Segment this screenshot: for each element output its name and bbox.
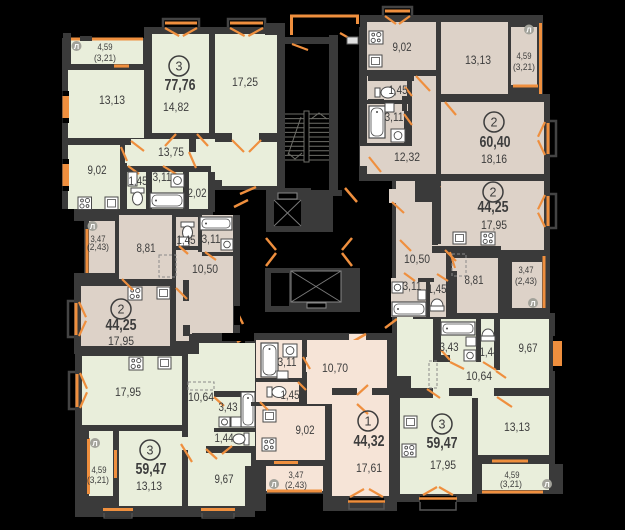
svg-text:3,43: 3,43 [440, 342, 459, 354]
svg-text:59,47: 59,47 [427, 435, 458, 452]
svg-text:(2,43): (2,43) [515, 276, 537, 286]
svg-text:2: 2 [118, 303, 125, 317]
svg-text:77,76: 77,76 [165, 77, 196, 94]
svg-text:1,45: 1,45 [177, 235, 196, 247]
svg-text:2,02: 2,02 [188, 188, 207, 200]
svg-text:(3,21): (3,21) [513, 62, 535, 72]
svg-text:1,45: 1,45 [428, 284, 447, 296]
svg-text:17,61: 17,61 [356, 463, 382, 475]
svg-text:2: 2 [490, 186, 497, 200]
svg-text:4,59: 4,59 [517, 51, 532, 61]
svg-text:Л: Л [74, 42, 79, 51]
svg-text:3,11: 3,11 [278, 357, 297, 369]
svg-text:10,70: 10,70 [322, 363, 348, 375]
svg-text:3,11: 3,11 [202, 234, 221, 246]
svg-text:1,44: 1,44 [215, 433, 235, 445]
svg-text:(2,43): (2,43) [87, 242, 109, 252]
svg-text:1: 1 [365, 415, 372, 429]
svg-text:3,11: 3,11 [153, 172, 172, 184]
svg-text:2: 2 [491, 116, 498, 130]
svg-text:17,25: 17,25 [232, 77, 258, 89]
svg-text:(3,21): (3,21) [94, 53, 116, 63]
svg-text:3: 3 [176, 60, 183, 74]
svg-text:13,13: 13,13 [465, 55, 491, 67]
svg-text:(3,21): (3,21) [500, 479, 522, 489]
svg-text:9,67: 9,67 [519, 343, 538, 355]
svg-text:10,50: 10,50 [404, 254, 430, 266]
svg-text:13,13: 13,13 [136, 481, 162, 493]
svg-text:Л: Л [544, 480, 549, 489]
svg-text:3,47: 3,47 [289, 470, 304, 480]
svg-text:44,32: 44,32 [354, 433, 385, 450]
svg-text:9,02: 9,02 [393, 42, 412, 54]
svg-text:18,16: 18,16 [481, 154, 507, 166]
svg-text:3,11: 3,11 [403, 281, 422, 293]
svg-text:8,81: 8,81 [137, 243, 156, 255]
svg-text:Л: Л [92, 439, 97, 448]
svg-text:1,44: 1,44 [480, 347, 500, 359]
svg-text:1,45: 1,45 [389, 85, 408, 97]
svg-text:13,13: 13,13 [504, 422, 530, 434]
svg-text:13,13: 13,13 [99, 95, 125, 107]
svg-text:60,40: 60,40 [480, 134, 511, 151]
svg-text:1,45: 1,45 [129, 176, 148, 188]
svg-text:9,02: 9,02 [88, 165, 107, 177]
svg-text:Л: Л [90, 222, 95, 231]
svg-text:Л: Л [530, 299, 535, 308]
svg-text:9,67: 9,67 [215, 474, 234, 486]
svg-text:8,81: 8,81 [465, 275, 484, 287]
svg-text:4,59: 4,59 [92, 465, 107, 475]
svg-text:13,75: 13,75 [158, 147, 184, 159]
svg-text:3: 3 [439, 418, 446, 432]
svg-text:44,25: 44,25 [478, 199, 509, 216]
svg-text:9,02: 9,02 [296, 425, 315, 437]
svg-text:10,64: 10,64 [188, 392, 215, 404]
svg-text:12,32: 12,32 [394, 152, 420, 164]
svg-text:3,43: 3,43 [219, 402, 238, 414]
svg-text:14,82: 14,82 [163, 102, 189, 114]
svg-text:10,50: 10,50 [192, 264, 218, 276]
svg-text:59,47: 59,47 [136, 461, 167, 478]
svg-text:17,95: 17,95 [115, 387, 141, 399]
svg-text:10,64: 10,64 [466, 371, 493, 383]
svg-text:44,25: 44,25 [106, 317, 137, 334]
svg-text:(3,21): (3,21) [87, 475, 109, 485]
svg-text:3,11: 3,11 [385, 112, 404, 124]
svg-text:3: 3 [147, 444, 154, 458]
svg-text:Л: Л [526, 26, 531, 35]
svg-text:17,95: 17,95 [108, 336, 134, 348]
svg-text:17,95: 17,95 [481, 220, 507, 232]
svg-text:1,45: 1,45 [281, 390, 300, 402]
svg-text:4,59: 4,59 [98, 42, 113, 52]
svg-text:3,47: 3,47 [519, 265, 534, 275]
svg-text:17,95: 17,95 [430, 460, 456, 472]
svg-text:Л: Л [271, 480, 276, 489]
svg-text:(2,43): (2,43) [285, 480, 307, 490]
